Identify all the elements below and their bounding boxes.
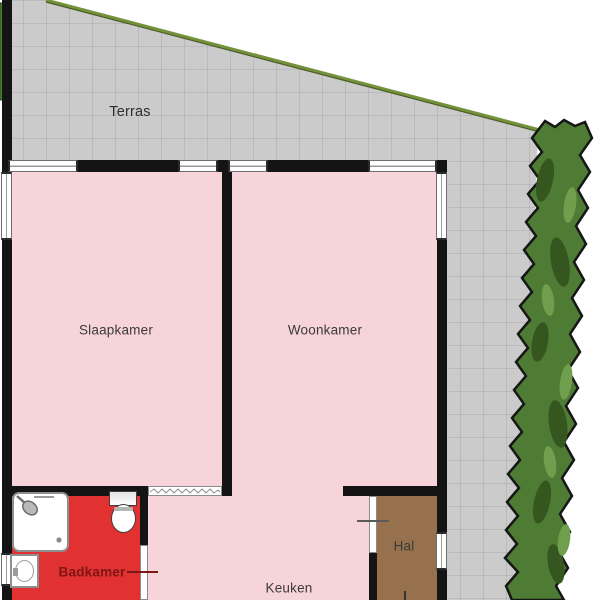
label-terras: Terras — [109, 104, 151, 120]
wall-exterior-left — [2, 0, 12, 600]
window-slaapkamer-left — [1, 172, 12, 240]
label-slaapkamer: Slaapkamer — [79, 323, 153, 338]
wall-badkamer-right — [140, 496, 148, 545]
opening-slaapkamer-keuken — [148, 486, 222, 496]
window-hal-right — [436, 532, 447, 570]
door-hal-leaf-mark — [357, 520, 389, 522]
washbasin-tap-icon — [13, 568, 18, 576]
drain-icon — [56, 537, 61, 542]
window-slaapkamer-top-1 — [8, 160, 78, 172]
washbasin-symbol — [10, 554, 39, 588]
shower-symbol — [12, 492, 69, 552]
window-woonkamer-right — [436, 172, 447, 240]
label-keuken: Keuken — [266, 581, 313, 596]
label-woonkamer: Woonkamer — [288, 323, 362, 338]
room-keuken — [148, 496, 369, 600]
floorplan: Terras Slaapkamer Woonkamer Badkamer Keu… — [0, 0, 600, 600]
window-slaapkamer-top-2 — [178, 160, 218, 172]
wall-hal-top — [343, 486, 447, 496]
toilet-seat-line — [114, 507, 133, 511]
window-woonkamer-top-1 — [228, 160, 268, 172]
badkamer-label-leader-line — [127, 571, 158, 573]
wall-hal-left — [369, 553, 377, 600]
toilet-symbol — [111, 504, 136, 533]
window-woonkamer-top-2 — [368, 160, 437, 172]
door-hal — [369, 496, 377, 553]
hal-bottom-door-mark — [404, 591, 406, 600]
woonkamer-keuken-open-passage — [232, 486, 343, 496]
label-hal: Hal — [394, 539, 415, 554]
label-badkamer: Badkamer — [59, 565, 126, 580]
opening-zigzag-line — [149, 487, 221, 495]
wall-slaapkamer-woonkamer — [222, 172, 232, 496]
shower-head-icon — [14, 494, 67, 550]
